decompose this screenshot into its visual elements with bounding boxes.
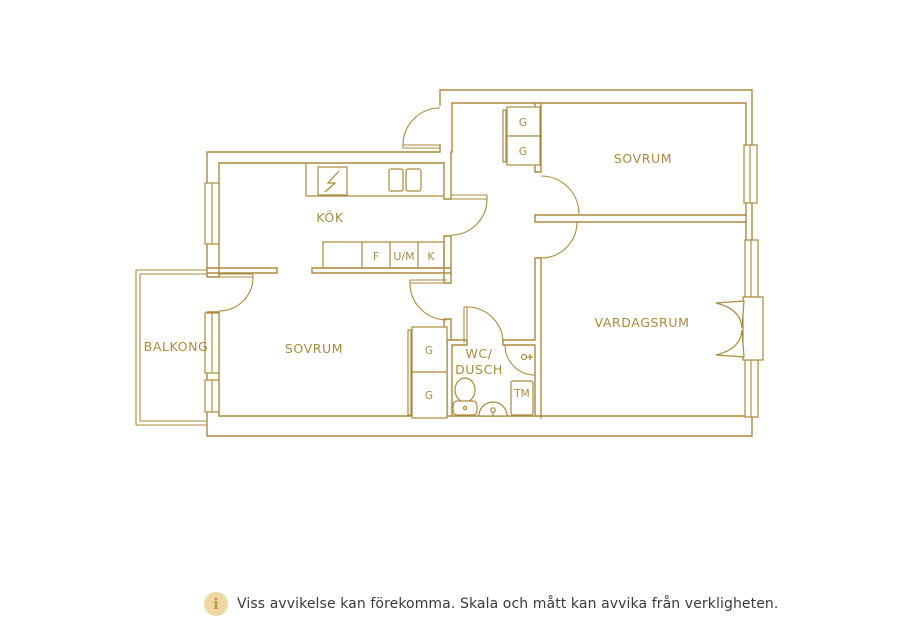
french-door-leaf-bottom: [716, 330, 744, 357]
floor-plan: F U/M K G G G G: [0, 0, 900, 560]
counter-bottom: [323, 242, 444, 268]
disclaimer-text: Viss avvikelse kan förekomma. Skala och …: [237, 596, 778, 612]
vardagsrum-door: [541, 222, 577, 258]
wc-door: [464, 307, 503, 343]
balcony-french-door: [716, 297, 763, 360]
info-icon: i: [204, 592, 228, 616]
washing-machine-label: TM: [513, 388, 529, 400]
hall-closets: G G: [503, 107, 540, 165]
room-label-balkong: BALKONG: [144, 339, 209, 354]
shower-faucet-icon: [522, 355, 527, 360]
sink-bowl-left: [389, 169, 403, 191]
sink-bowl-right: [406, 169, 421, 191]
wc-closets: G G: [408, 327, 447, 418]
sovrum-top-door: [541, 176, 579, 214]
closet-doors: [503, 110, 506, 162]
kitchen-door: [451, 195, 487, 235]
room-label-wc-line2: DUSCH: [455, 362, 503, 377]
closet-doors: [408, 330, 411, 415]
sovrum-left-door: [410, 280, 447, 320]
french-door-leaf-top: [716, 301, 744, 328]
stove-icon: [318, 167, 347, 195]
closet-label: G: [519, 117, 527, 129]
closet-label: G: [519, 146, 527, 158]
closet-label: G: [425, 345, 433, 357]
balkong-door: [219, 274, 253, 311]
room-label-kok: KÖK: [316, 209, 344, 225]
freezer-label: K: [427, 250, 435, 263]
closet-label: G: [425, 390, 433, 402]
floorplan-page: F U/M K G G G G: [0, 0, 900, 636]
entrance-door: [403, 108, 440, 148]
room-label-vardagsrum: VARDAGSRUM: [595, 315, 690, 330]
room-label-sovrum-top: SOVRUM: [614, 151, 672, 166]
room-label-sovrum-left: SOVRUM: [285, 341, 343, 356]
footer-disclaimer: i Viss avvikelse kan förekomma. Skala oc…: [204, 592, 778, 616]
toilet-icon: [455, 378, 475, 402]
fridge-label: F: [373, 250, 379, 263]
micro-label: U/M: [393, 250, 414, 263]
room-label-wc-line1: WC/: [465, 346, 492, 361]
outer-walls: [207, 90, 752, 436]
toilet-tank: [453, 401, 477, 415]
